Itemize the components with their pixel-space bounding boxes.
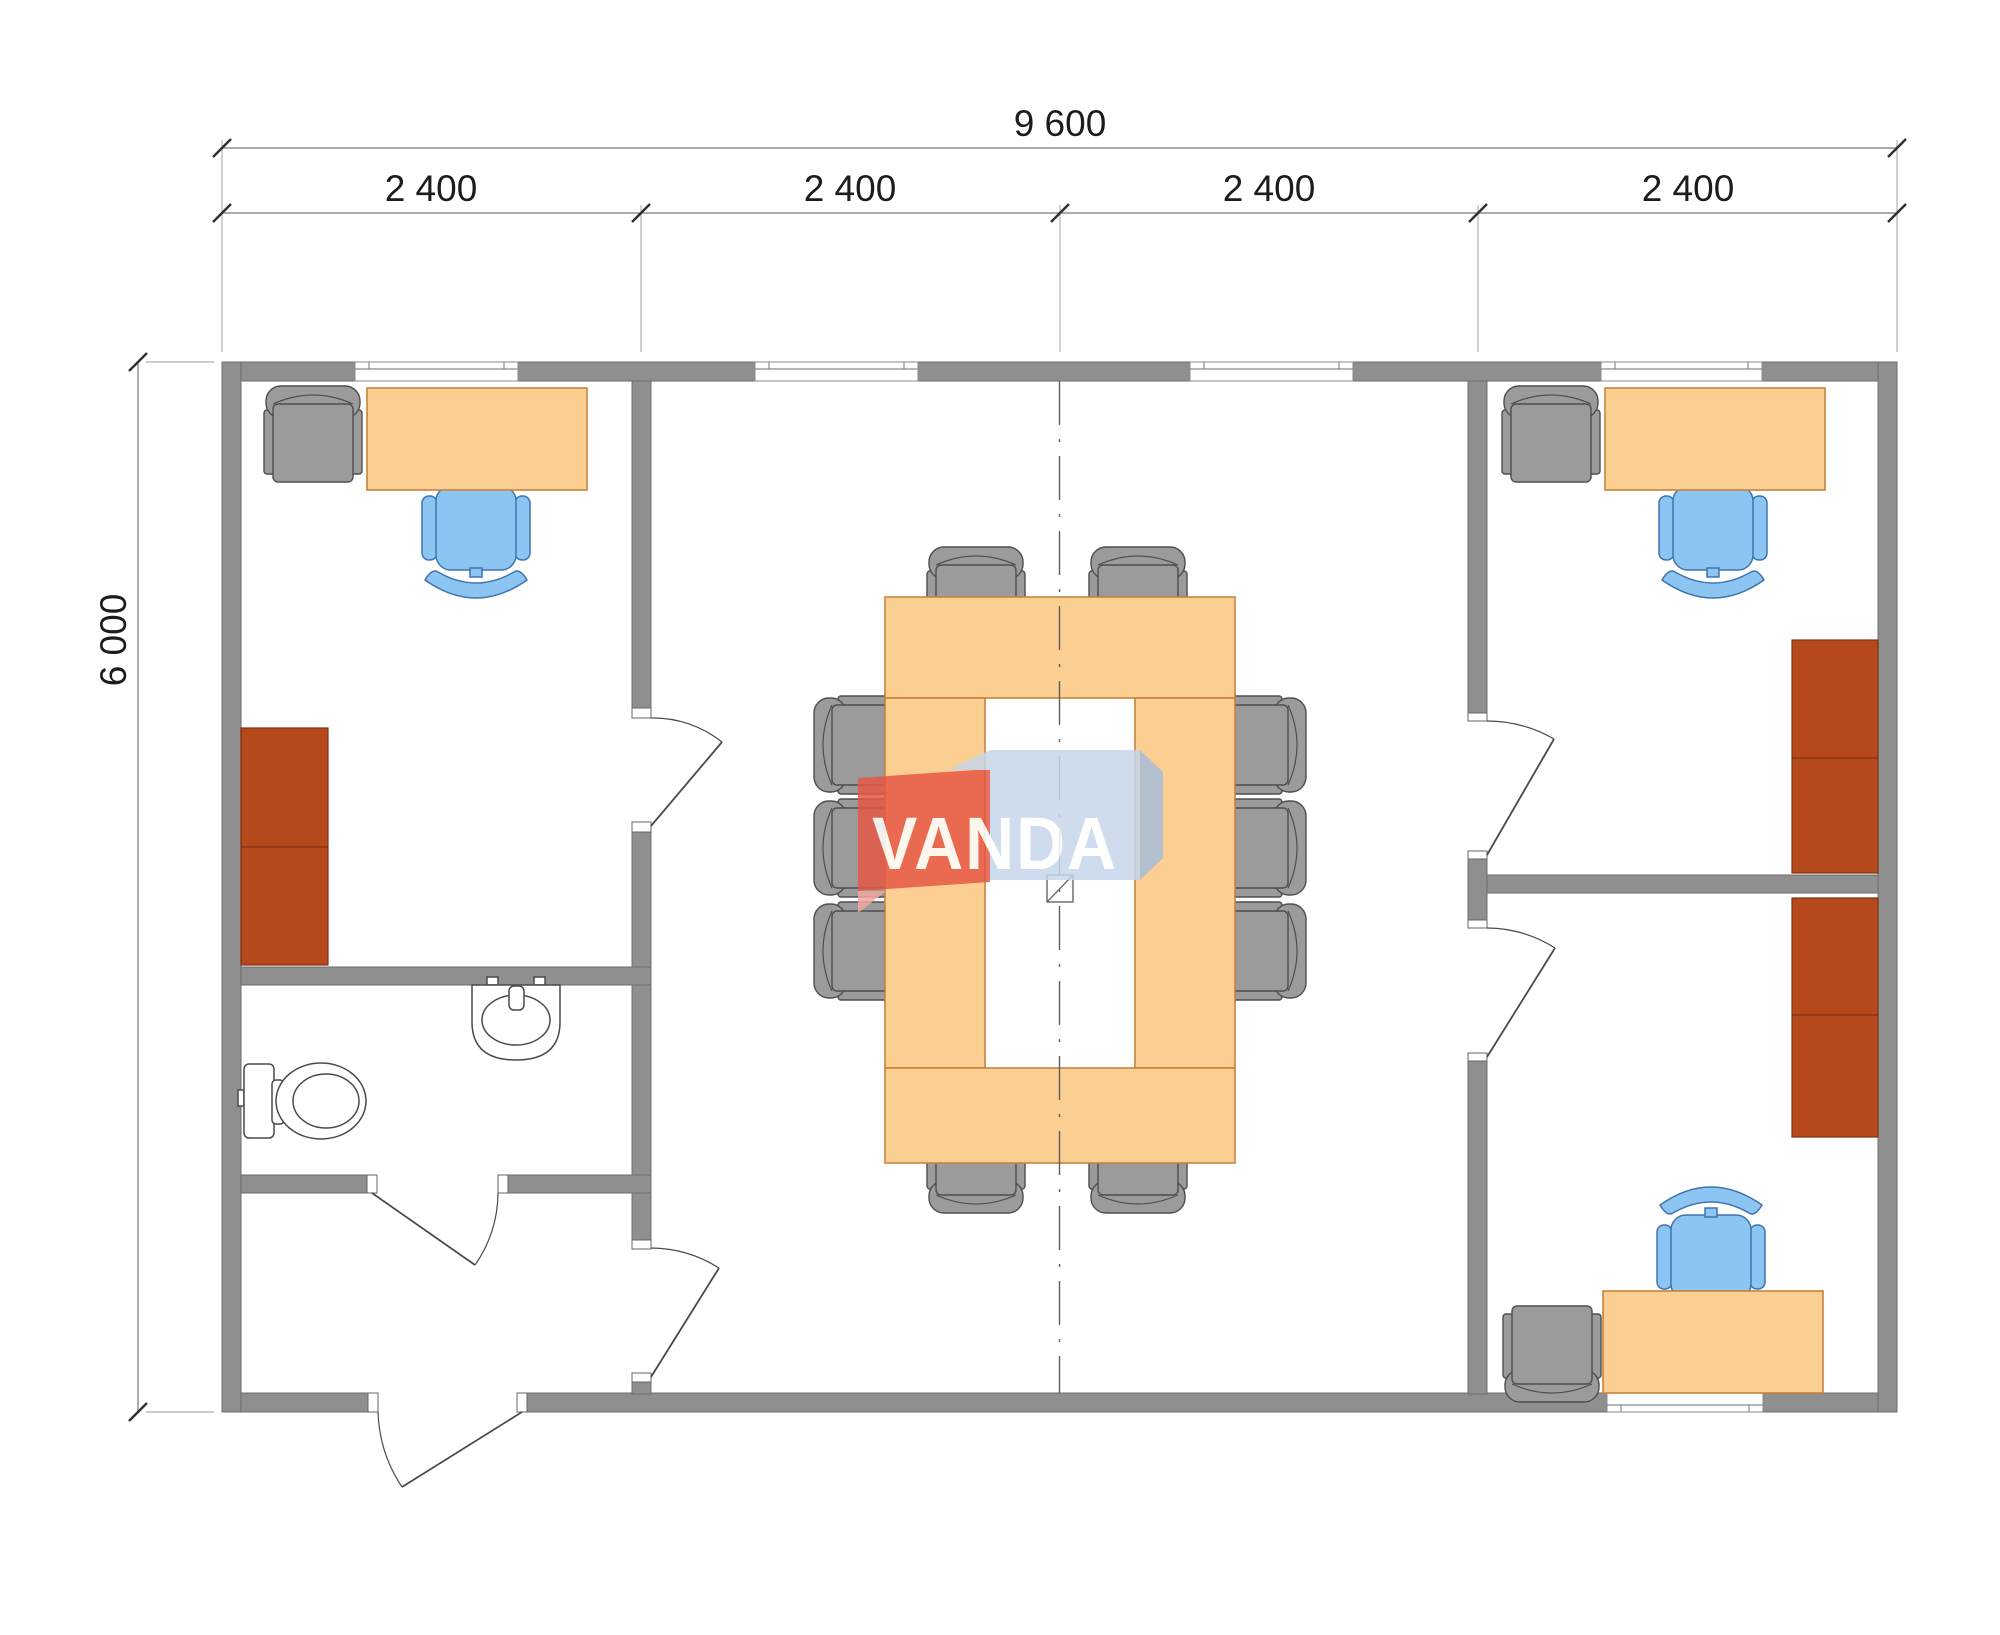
- dimension-label-module: 2 400: [385, 168, 478, 209]
- sink-faucet: [509, 986, 524, 1010]
- dimension-label-module: 2 400: [1642, 168, 1735, 209]
- door-jamb: [498, 1175, 508, 1193]
- toilet-bowl-inner: [293, 1074, 359, 1128]
- door-jamb: [632, 1373, 651, 1382]
- door-jamb: [632, 822, 651, 832]
- office-chair-gray: [1503, 1306, 1601, 1402]
- wall-segment: [1762, 362, 1897, 381]
- sink-tap: [534, 977, 545, 985]
- door-bottom-right-office: [1487, 928, 1555, 1057]
- sink: [472, 977, 560, 1060]
- desk: [1603, 1291, 1823, 1393]
- wall-segment: [1353, 362, 1601, 381]
- desk: [1605, 388, 1825, 490]
- wall-segment: [632, 1382, 651, 1394]
- wall-segment: [518, 362, 755, 381]
- dimension-label-module: 2 400: [1223, 168, 1316, 209]
- dimension-label-total-height: 6 000: [93, 594, 134, 687]
- wall-segment: [1468, 1061, 1487, 1394]
- watermark-text: VANDA: [872, 802, 1118, 885]
- wall-segment: [222, 1393, 368, 1412]
- window: [1190, 362, 1353, 381]
- floor-plan-drawing: VANDA 9 600 2 400 2 400 2 400 2 400 6 00…: [0, 0, 2000, 1630]
- task-chair-blue: [422, 486, 530, 598]
- door-jamb: [1468, 1053, 1487, 1061]
- wall-segment: [241, 967, 651, 985]
- wall-segment: [918, 362, 1190, 381]
- wall-segment: [1468, 859, 1487, 920]
- wall-segment: [1763, 1393, 1897, 1412]
- door-jamb: [517, 1393, 527, 1412]
- door-bathroom: [372, 1193, 498, 1265]
- office-chair-gray: [264, 386, 362, 482]
- watermark-blue-edge: [1140, 750, 1163, 880]
- wall-segment: [508, 1175, 651, 1193]
- dimension-label-module: 2 400: [804, 168, 897, 209]
- window: [755, 362, 918, 381]
- toilet-tank: [244, 1064, 274, 1138]
- door-jamb: [632, 708, 651, 718]
- desk: [367, 388, 587, 490]
- wall-segment: [222, 362, 355, 381]
- task-chair-blue: [1657, 1187, 1765, 1299]
- door-top-right-office: [1487, 721, 1554, 855]
- office-chair-gray: [1502, 386, 1600, 482]
- cabinet: [1792, 640, 1878, 873]
- door-entrance: [378, 1412, 522, 1487]
- cabinet: [1792, 898, 1878, 1137]
- wall-right-exterior: [1878, 362, 1897, 1412]
- door-jamb: [1468, 851, 1487, 859]
- door-jamb: [368, 1393, 378, 1412]
- conference-table-right: [1135, 698, 1235, 1068]
- door-hall-to-center: [651, 1248, 719, 1377]
- door-left-office: [651, 718, 722, 826]
- door-jamb: [367, 1175, 377, 1193]
- wall-segment: [241, 1175, 367, 1193]
- door-jamb: [1468, 920, 1487, 928]
- window: [1607, 1393, 1763, 1412]
- wall-left-exterior: [222, 362, 241, 1412]
- bathroom: [238, 977, 560, 1139]
- sink-tap: [487, 977, 498, 985]
- toilet-flush: [238, 1090, 244, 1106]
- toilet: [238, 1063, 366, 1139]
- wall-segment: [1487, 875, 1878, 893]
- dimension-label-total-width: 9 600: [1014, 103, 1107, 144]
- wall-segment: [632, 381, 651, 708]
- door-jamb: [1468, 713, 1487, 721]
- wall-segment: [1468, 381, 1487, 713]
- wall-segment: [527, 1393, 1607, 1412]
- window: [355, 362, 518, 381]
- door-jamb: [632, 1240, 651, 1249]
- window: [1601, 362, 1762, 381]
- floor-plan-page: VANDA 9 600 2 400 2 400 2 400 2 400 6 00…: [0, 0, 2000, 1630]
- task-chair-blue: [1659, 486, 1767, 598]
